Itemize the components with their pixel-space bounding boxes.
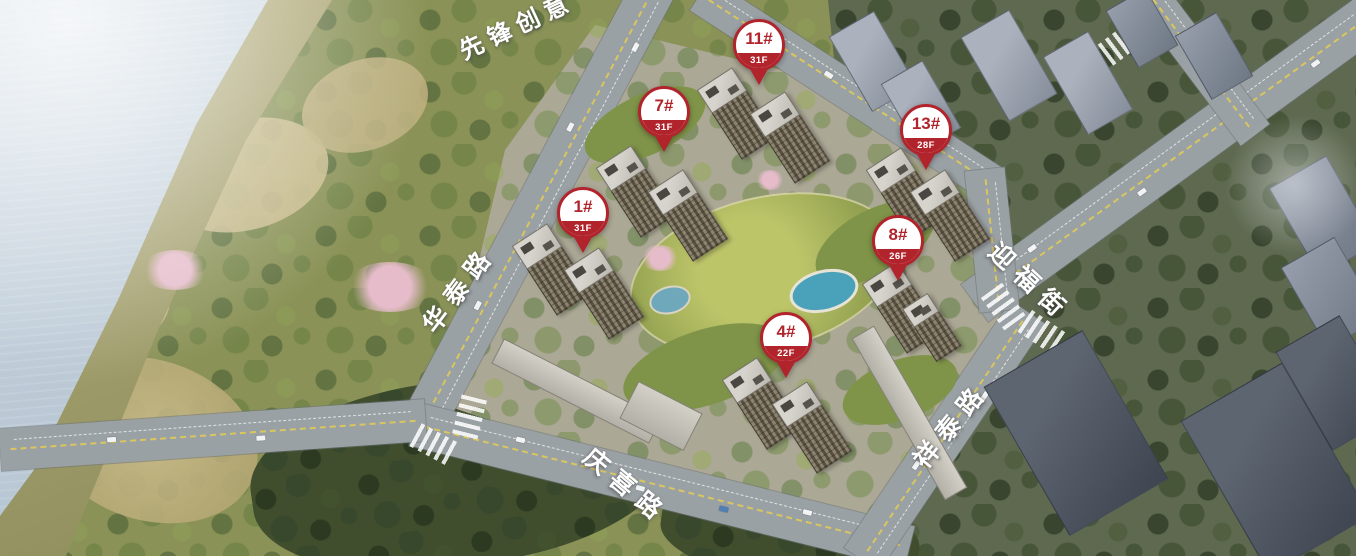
pin-tail-icon — [777, 362, 795, 378]
building-pin-4[interactable]: 4# 22F — [760, 312, 812, 378]
pin-floor-count: 31F — [560, 221, 606, 236]
pin-floor-count: 26F — [875, 249, 921, 264]
pin-layer: 1# 31F 4# 22F 7# 31F 8# 26F 11# 31F 13# … — [0, 0, 1356, 556]
pin-building-number: 7# — [641, 89, 687, 120]
pin-tail-icon — [655, 136, 673, 152]
pin-tail-icon — [574, 237, 592, 253]
building-pin-8[interactable]: 8# 26F — [872, 215, 924, 281]
building-pin-1[interactable]: 1# 31F — [557, 187, 609, 253]
pin-floor-count: 31F — [736, 53, 782, 68]
pin-building-number: 1# — [560, 190, 606, 221]
pin-head: 1# 31F — [557, 187, 609, 239]
building-pin-13[interactable]: 13# 28F — [900, 104, 952, 170]
pin-head: 7# 31F — [638, 86, 690, 138]
pin-head: 4# 22F — [760, 312, 812, 364]
pin-building-number: 4# — [763, 315, 809, 346]
pin-building-number: 11# — [736, 22, 782, 53]
pin-floor-count: 22F — [763, 346, 809, 361]
pin-floor-count: 31F — [641, 120, 687, 135]
building-pin-11[interactable]: 11# 31F — [733, 19, 785, 85]
pin-tail-icon — [917, 154, 935, 170]
pin-head: 11# 31F — [733, 19, 785, 71]
pin-head: 13# 28F — [900, 104, 952, 156]
site-plan-aerial-view: 先锋创意华泰路迎福街祥泰路庆喜路 1# 31F 4# 22F 7# 31F 8#… — [0, 0, 1356, 556]
pin-floor-count: 28F — [903, 138, 949, 153]
building-pin-7[interactable]: 7# 31F — [638, 86, 690, 152]
pin-tail-icon — [889, 265, 907, 281]
pin-tail-icon — [750, 69, 768, 85]
pin-building-number: 13# — [903, 107, 949, 138]
pin-head: 8# 26F — [872, 215, 924, 267]
pin-building-number: 8# — [875, 218, 921, 249]
